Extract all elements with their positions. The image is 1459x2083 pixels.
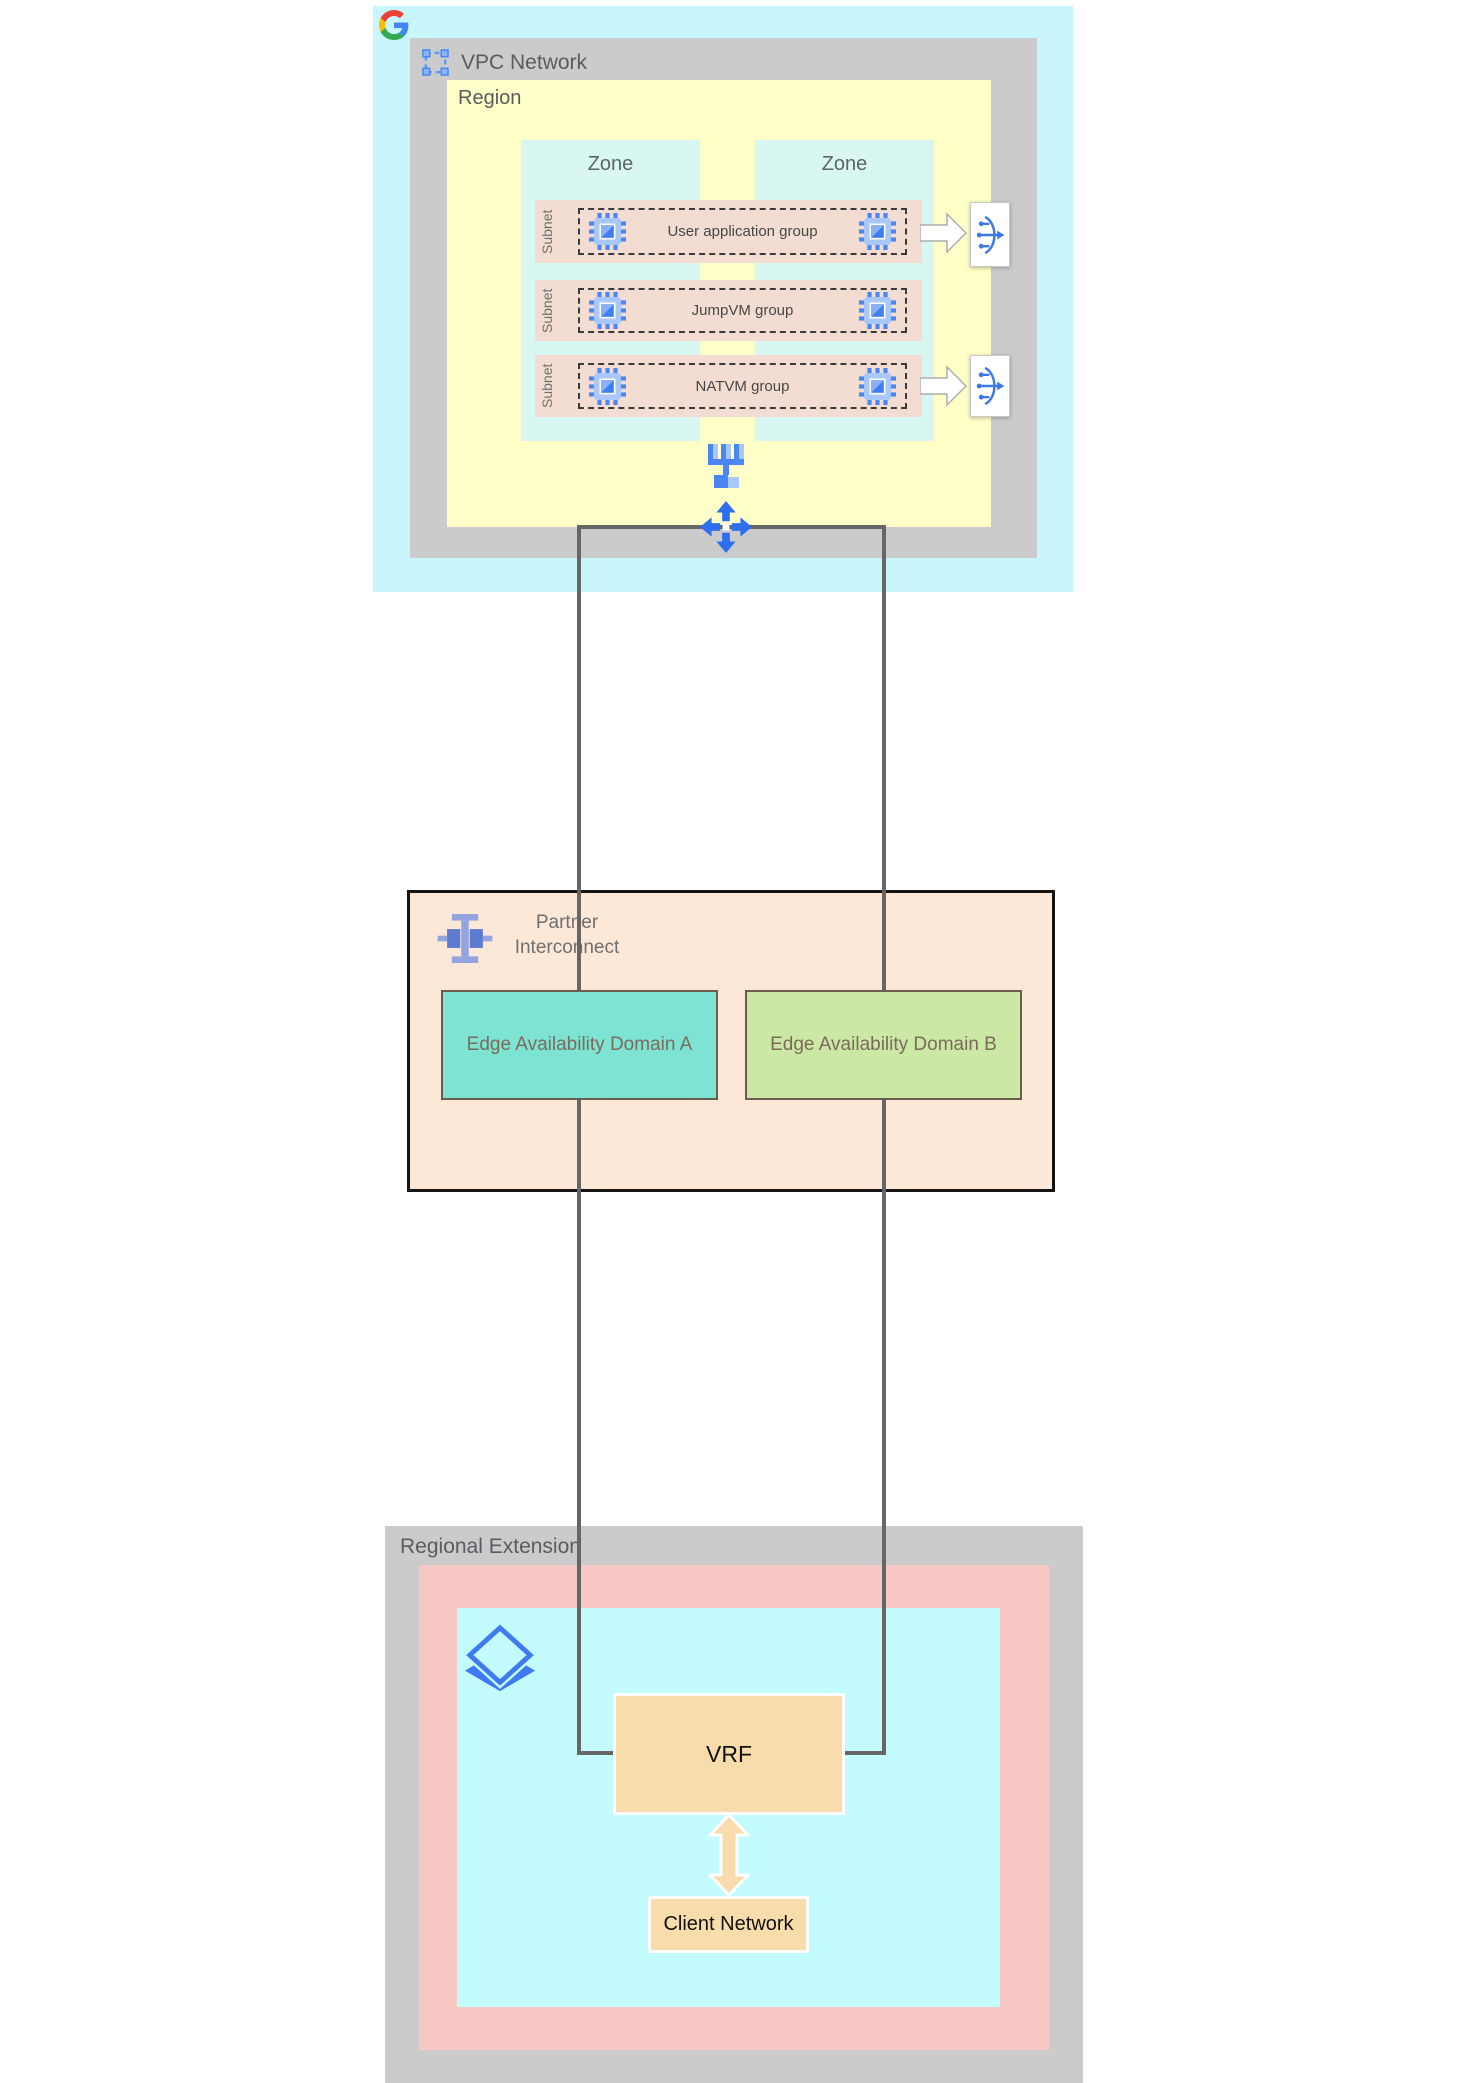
flow-arrow-to-lb-2 xyxy=(920,365,968,407)
subnet-row-natvm: Subnet NATVM group xyxy=(535,355,922,417)
gcp-architecture-diagram: VPC Network Region Zone Zone Subnet xyxy=(0,0,1459,2083)
load-balancer-icon xyxy=(974,363,1006,409)
load-balancer-card-2 xyxy=(970,355,1010,417)
partner-interconnect-icon xyxy=(436,914,494,963)
subnet-row-jumpvm: Subnet JumpVM group xyxy=(535,280,922,341)
connector-right-vertical xyxy=(882,525,886,1755)
vm-group-label: NATVM group xyxy=(626,378,859,395)
subnet-row-user-application: Subnet User application group xyxy=(535,200,922,263)
client-network-box: Client Network xyxy=(648,1896,809,1953)
vm-group-frame: User application group xyxy=(578,208,907,255)
edge-domain-a-label: Edge Availability Domain A xyxy=(467,1034,693,1056)
subnet-label: Subnet xyxy=(536,200,558,263)
partner-interconnect-label: Partner Interconnect xyxy=(487,910,647,960)
vm-group-frame: JumpVM group xyxy=(578,288,907,333)
regional-extension-title: Regional Extension xyxy=(400,1535,581,1559)
vm-instance-icon xyxy=(859,368,896,405)
client-network-label: Client Network xyxy=(663,1913,793,1936)
partner-label-line2: Interconnect xyxy=(487,935,647,960)
subnet-label: Subnet xyxy=(536,280,558,341)
vm-group-label: User application group xyxy=(626,223,859,240)
bidirectional-arrow xyxy=(705,1813,753,1897)
load-balancer-card-1 xyxy=(970,202,1010,267)
connector-left-stub xyxy=(577,1751,617,1755)
region-title: Region xyxy=(458,87,521,110)
edge-availability-domain-a: Edge Availability Domain A xyxy=(441,990,718,1100)
vm-instance-icon xyxy=(859,213,896,250)
vpc-network-title: VPC Network xyxy=(461,49,587,77)
edge-availability-domain-b: Edge Availability Domain B xyxy=(745,990,1022,1100)
vm-instance-icon xyxy=(589,213,626,250)
google-logo-icon xyxy=(379,10,409,40)
vrf-box: VRF xyxy=(613,1693,845,1815)
flow-arrow-to-lb-1 xyxy=(920,212,968,254)
vm-group-frame: NATVM group xyxy=(578,363,907,409)
zone-right-label: Zone xyxy=(755,153,934,176)
vm-instance-icon xyxy=(589,292,626,329)
partner-label-line1: Partner xyxy=(487,910,647,935)
connector-right-stub xyxy=(845,1751,886,1755)
network-topology-icon xyxy=(706,443,746,489)
vm-instance-icon xyxy=(589,368,626,405)
vpc-network-frame: VPC Network Region Zone Zone Subnet xyxy=(410,38,1037,558)
routes-four-way-icon xyxy=(700,501,752,553)
vpc-network-icon xyxy=(422,49,449,76)
peering-edge-diamond-icon xyxy=(462,1624,538,1692)
vm-group-label: JumpVM group xyxy=(626,302,859,319)
load-balancer-icon xyxy=(974,212,1006,258)
vrf-label: VRF xyxy=(706,1741,752,1768)
connector-left-vertical xyxy=(577,525,581,1755)
edge-domain-b-label: Edge Availability Domain B xyxy=(770,1034,997,1056)
vm-instance-icon xyxy=(859,292,896,329)
zone-left-label: Zone xyxy=(521,153,700,176)
region-container: Region Zone Zone Subnet User applic xyxy=(447,80,991,527)
subnet-label: Subnet xyxy=(536,355,558,417)
